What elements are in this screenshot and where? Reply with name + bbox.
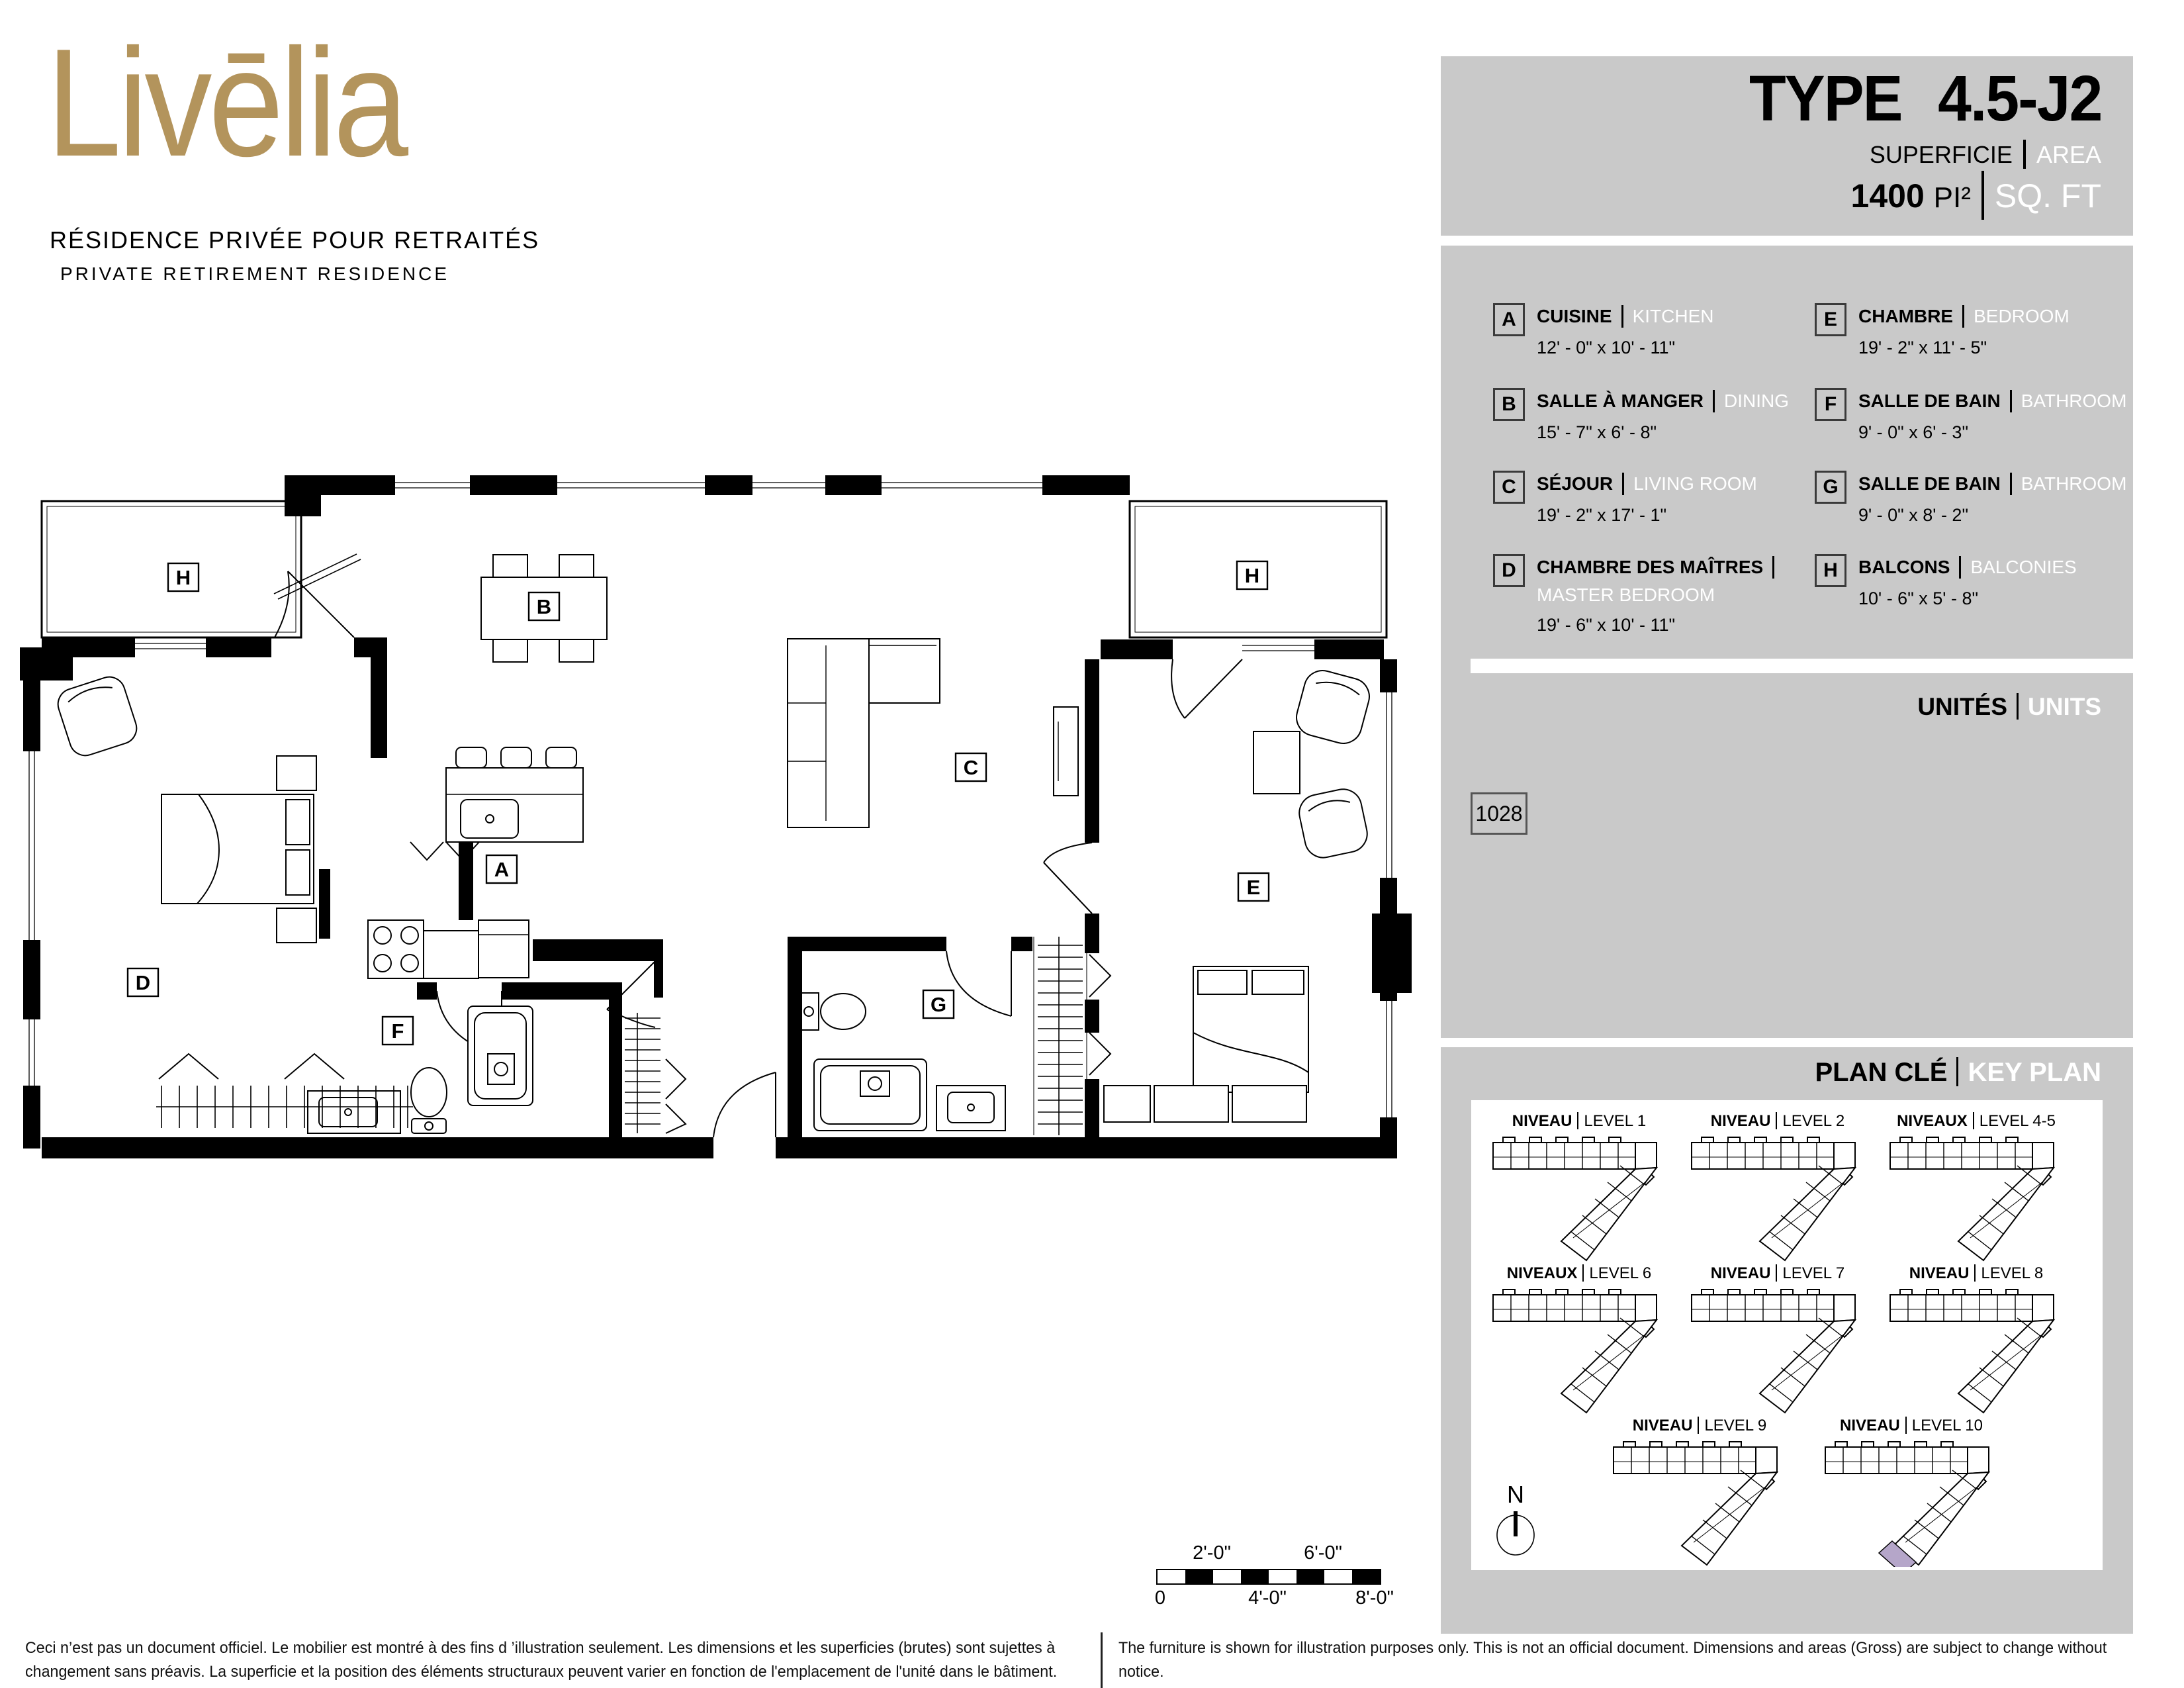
area-unit-fr: PI² <box>1934 181 1971 214</box>
room-label-d: D <box>136 971 150 994</box>
unit-type-panel: TYPE4.5-J2 SUPERFICIEAREA 1400 PI²SQ. FT <box>1441 56 2133 236</box>
type-label: TYPE <box>1749 62 1902 134</box>
area-unit-en: SQ. FT <box>1995 177 2101 214</box>
room-label-e: E <box>1247 876 1261 899</box>
floor-plan: H B H C A E D F G <box>0 0 1436 1192</box>
area-value: 1400 <box>1851 177 1925 214</box>
floorplan-sheet: Livēlia RÉSIDENCE PRIVÉE POUR RETRAITÉS … <box>0 0 2184 1688</box>
room-label-f: F <box>392 1019 404 1043</box>
compass-icon <box>1494 1509 1537 1556</box>
legend-key-f: F <box>1815 388 1846 421</box>
disclaimer-french: Ceci n’est pas un document officiel. Le … <box>25 1636 1059 1684</box>
area-label-en: AREA <box>2036 141 2101 168</box>
type-value: 4.5-J2 <box>1938 62 2101 134</box>
unit-number-chip: 1028 <box>1471 792 1527 835</box>
scale-bar-segments <box>1156 1569 1381 1585</box>
legend-key-e: E <box>1815 303 1846 336</box>
north-label: N <box>1486 1481 1545 1509</box>
legend-key-h: H <box>1815 554 1846 587</box>
keyplan-level-2: NIVEAULEVEL 2 <box>1682 1112 1874 1264</box>
legend-key-d: D <box>1493 554 1525 587</box>
key-plan-panel: PLAN CLÉKEY PLAN <box>1441 1047 2133 1634</box>
room-label-h-right: H <box>1245 564 1259 587</box>
key-plan-box: NIVEAULEVEL 1 NIVEAULEVEL 2 NIVEAUXLEVEL… <box>1471 1100 2103 1570</box>
legend-key-c: C <box>1493 471 1525 504</box>
north-compass: N <box>1486 1481 1545 1564</box>
units-divider <box>1471 659 2133 673</box>
legend-key-b: B <box>1493 388 1525 421</box>
keyplan-level-6: NIVEAUXLEVEL 6 <box>1483 1264 1675 1417</box>
legend-panel: A CUISINEKITCHEN 12' - 0" x 10' - 11" B … <box>1441 246 2133 1038</box>
key-plan-title: PLAN CLÉKEY PLAN <box>1815 1058 2101 1088</box>
area-label-fr: SUPERFICIE <box>1870 141 2013 168</box>
keyplan-level-8: NIVEAULEVEL 8 <box>1880 1264 2072 1417</box>
room-label-c: C <box>964 756 978 779</box>
keyplan-level-7: NIVEAULEVEL 7 <box>1682 1264 1874 1417</box>
scale-bar: 2'-0" 6'-0" 0 4'-0" 8'-0" <box>1156 1542 1379 1615</box>
disclaimer-divider <box>1101 1632 1103 1688</box>
area-label-line: SUPERFICIEAREA <box>1870 141 2101 169</box>
area-value-line: 1400 PI²SQ. FT <box>1851 177 2101 220</box>
unit-type-title: TYPE4.5-J2 <box>1749 62 2101 136</box>
legend-key-a: A <box>1493 303 1525 336</box>
keyplan-level-9: NIVEAULEVEL 9 <box>1604 1417 1796 1569</box>
legend-key-g: G <box>1815 471 1846 504</box>
keyplan-level-1: NIVEAULEVEL 1 <box>1483 1112 1675 1264</box>
room-label-g: G <box>931 993 946 1016</box>
disclaimer-english: The furniture is shown for illustration … <box>1118 1636 2139 1688</box>
units-title: UNITÉSUNITS <box>1917 693 2101 721</box>
room-label-a: A <box>494 858 509 881</box>
keyplan-level-4-5: NIVEAUXLEVEL 4-5 <box>1880 1112 2072 1264</box>
room-label-b: B <box>537 595 551 618</box>
keyplan-level-10: NIVEAULEVEL 10 <box>1815 1417 2007 1569</box>
room-label-h-left: H <box>176 566 191 589</box>
